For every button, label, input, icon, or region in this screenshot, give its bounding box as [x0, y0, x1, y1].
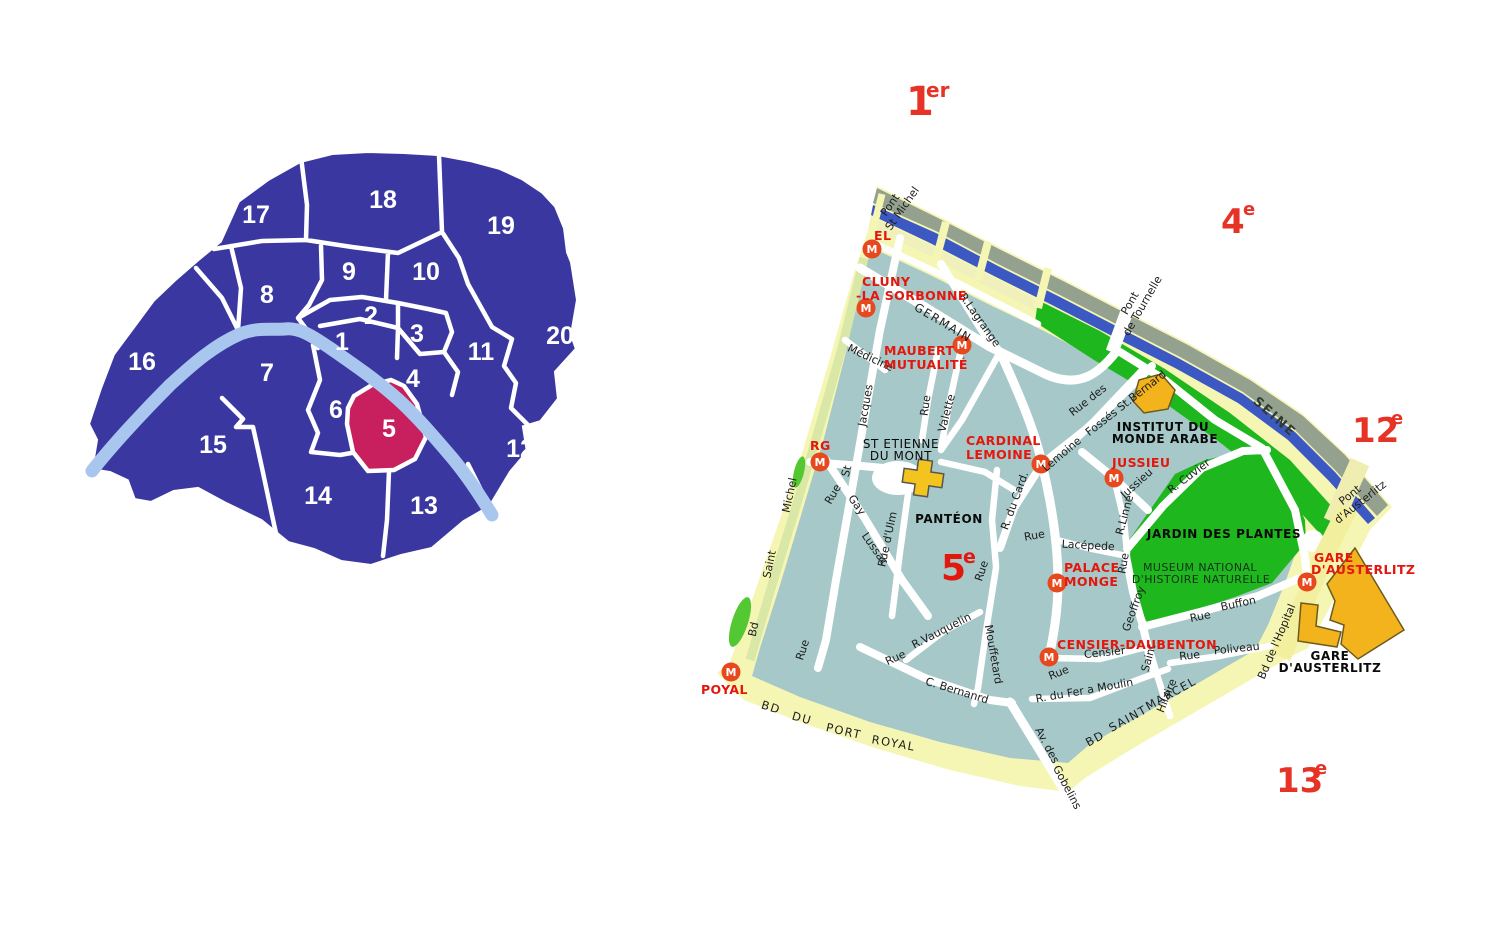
label-4e: 4: [1221, 202, 1245, 242]
label-1er-sup: er: [926, 78, 950, 102]
district-1-label: 1: [335, 328, 349, 356]
district-19-label: 19: [487, 212, 515, 240]
svg-text:M: M: [1052, 577, 1063, 590]
district-18-label: 18: [369, 186, 397, 214]
metro-port-royal: M: [722, 663, 741, 682]
district-2-label: 2: [364, 302, 378, 330]
district-16-label: 16: [128, 348, 156, 376]
label-station-jussieu: JUSSIEU: [1111, 455, 1170, 470]
paris-arrondissement-map: 1 2 3 4 5 6 7 8 9 10 11 12 13 14 15 16 1…: [0, 0, 1510, 933]
district-10-label: 10: [412, 258, 440, 286]
district-20-label: 20: [546, 322, 574, 350]
district-8-label: 8: [260, 281, 274, 309]
district-9-label: 9: [342, 258, 356, 286]
svg-text:M: M: [1302, 576, 1313, 589]
district-15-label: 15: [199, 431, 227, 459]
svg-text:M: M: [815, 456, 826, 469]
label-station-cluny-2: -LA SORBONNE: [856, 288, 967, 303]
label-pantheon: PANTÉON: [915, 511, 983, 526]
svg-text:M: M: [867, 243, 878, 256]
label-jardin-des-plantes: JARDIN DES PLANTES: [1146, 527, 1301, 541]
svg-text:M: M: [861, 302, 872, 315]
label-station-gare-2: D'AUSTERLITZ: [1311, 562, 1415, 577]
district-14-label: 14: [304, 482, 332, 510]
district-3-label: 3: [410, 320, 424, 348]
label-station-maubert-1: MAUBERT: [884, 343, 954, 358]
detail-map: M M M M M M M M M M PontSt Michel Pontde…: [701, 78, 1415, 812]
label-station-monge-1: PALACE: [1064, 560, 1119, 575]
label-station-cardinal-2: LEMOINE: [966, 447, 1032, 462]
label-station-cluny-1: CLUNY: [862, 274, 911, 289]
label-museum-2: D'HISTOIRE NATURELLE: [1132, 573, 1270, 586]
district-11-label: 11: [468, 338, 495, 366]
label-st-etienne-2: DU MONT: [870, 449, 932, 463]
district-17-label: 17: [242, 201, 270, 229]
district-7-label: 7: [260, 359, 274, 387]
label-station-port-royal: POYAL: [701, 682, 748, 697]
label-station-luxembourg: RG: [810, 438, 831, 453]
svg-text:M: M: [1109, 472, 1120, 485]
metro-censier-daubenton: M: [1040, 648, 1059, 667]
label-station-cardinal-1: CARDINAL: [966, 433, 1041, 448]
overview-map: 1 2 3 4 5 6 7 8 9 10 11 12 13 14 15 16 1…: [88, 151, 578, 566]
label-gare-black-2: D'AUSTERLITZ: [1279, 661, 1382, 675]
label-12e-sup: e: [1391, 408, 1403, 429]
label-station-maubert-2: MUTUALITÉ: [884, 357, 968, 372]
label-station-st-michel: EL: [874, 228, 891, 243]
svg-text:M: M: [1044, 651, 1055, 664]
district-6-label: 6: [329, 396, 343, 424]
label-station-monge-2: MONGE: [1064, 574, 1118, 589]
label-13e-sup: e: [1315, 758, 1327, 779]
metro-luxembourg: M: [811, 453, 830, 472]
label-5e-sup: e: [963, 546, 976, 568]
label-station-censier: CENSIER-DAUBENTON: [1057, 637, 1217, 652]
district-12-label: 12: [506, 435, 534, 463]
svg-text:M: M: [726, 666, 737, 679]
district-5-label: 5: [382, 415, 396, 443]
metro-jussieu: M: [1105, 469, 1124, 488]
district-13-label: 13: [410, 492, 438, 520]
label-institut-2: MONDE ARABE: [1112, 432, 1218, 446]
label-4e-sup: e: [1243, 199, 1255, 220]
district-4-label: 4: [406, 365, 420, 393]
